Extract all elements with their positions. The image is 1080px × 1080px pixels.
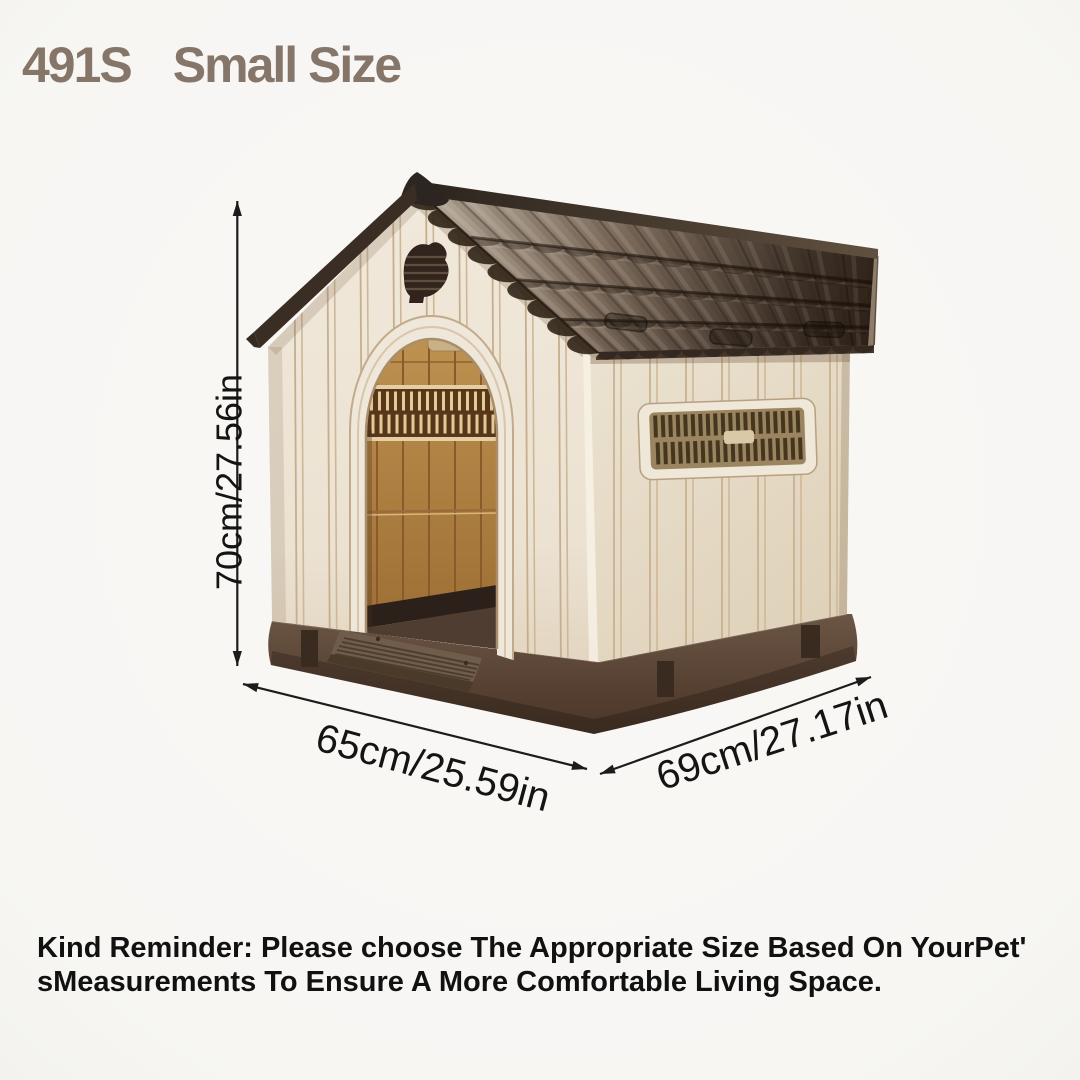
svg-text:70cm/27.56in: 70cm/27.56in [209, 374, 250, 590]
